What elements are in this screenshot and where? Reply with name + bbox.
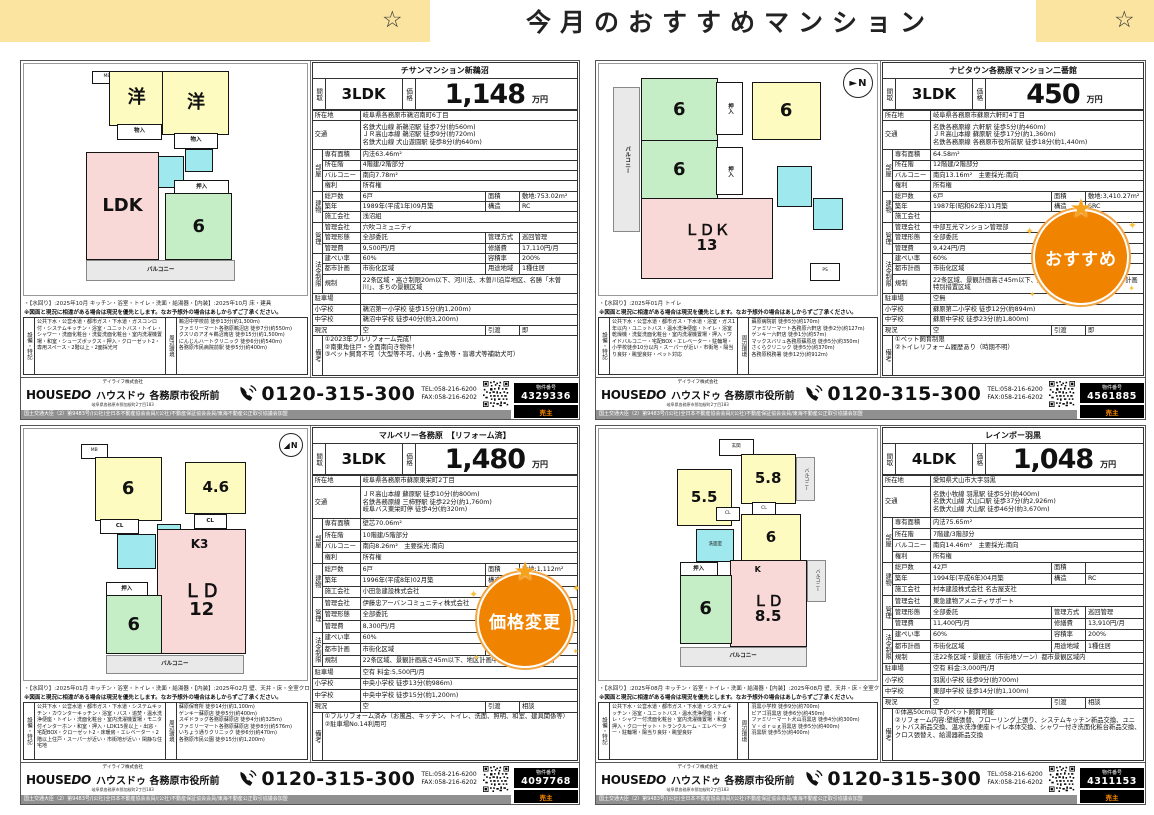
grp-heya: 部屋: [312, 150, 322, 192]
phone-number: 0120-315-300: [261, 383, 415, 405]
seller-badge: 売主: [514, 405, 578, 418]
disclaimer-line: ※図面と現況に相違がある場合は現況を優先とします。なお予想外の場合はあしからずご…: [21, 308, 310, 316]
balcony-label: バルコニー: [803, 468, 808, 491]
val-site-area: 敷地:753.02m²: [519, 191, 577, 201]
shuhen-text: 羽黒小学校 徒歩9分(約700m) ピアゴ羽黒店 徒歩6分(約450m) ファミ…: [749, 703, 876, 759]
balcony-label: バルコニー: [161, 662, 188, 668]
closet: 物入: [174, 133, 218, 149]
grp-horei: 法令制限: [882, 254, 892, 294]
val-junior-high: 中央中学校 徒歩15分(約1,200m): [360, 690, 577, 701]
val-builder: [930, 212, 1143, 222]
val-floor: 12階建/2階部分: [930, 160, 1143, 170]
val-structure: RC: [1086, 573, 1144, 584]
lbl-madori: 間取: [883, 444, 896, 474]
qr-code: [483, 381, 509, 407]
price-value: 1,480: [445, 444, 525, 475]
lbl-biko: 備考: [312, 713, 322, 761]
grp-heya: 部屋: [882, 518, 892, 563]
lbl-hikiwatashi: 引渡: [1052, 325, 1086, 335]
lbl-hikiwatashi: 引渡: [1052, 697, 1086, 708]
floor-plan: ◢N MB 6 4.6 CL CL ＬＤ 12 K3 押入 6 バルコニー: [23, 428, 308, 681]
lbl-kanri-keitai: 管理形態: [892, 607, 930, 618]
val-hikiwatashi: 相談: [520, 701, 578, 712]
spec-row: 間取 3LDK 価格 1,480万円: [312, 443, 578, 475]
lbl-bukken: 物件番号: [514, 769, 578, 776]
val-biko: ①体高50cm以下のペット飼育可能 ②リフォーム内容:壁紙張替、フローリング上張…: [892, 709, 1143, 761]
lbl-chikunen: 築年: [892, 202, 930, 212]
tel-number: TEL:058-216-6200: [987, 771, 1043, 779]
val-mgmt-fee: 9,424円/月: [930, 243, 1051, 253]
val-kisei: 22条区域・高さ制限20m以下、河川法、木曽川沿岸地区、名勝「木曽川」、まちの景…: [360, 274, 577, 294]
washroom: 洗面室: [696, 529, 734, 561]
lbl-kenri: 権利: [322, 181, 360, 191]
notes-box: 設備・特記 公共下水・公営水道・都市ガス・下水道・システムキッチン・浴室・ユニッ…: [598, 702, 878, 760]
bukken-number: 4329336: [514, 391, 578, 402]
val-address: 岐阜県各務原市鵜沼南町6丁目: [360, 111, 577, 121]
badge-text: おすすめ: [1045, 245, 1117, 270]
val-kenri: 所有権: [930, 551, 1143, 562]
room-label: ＬＤ 12: [184, 583, 220, 619]
lbl-shuhen: 周辺環境: [738, 703, 749, 759]
phone-block: 0120-315-300: [803, 383, 981, 405]
ps-label: PS: [822, 269, 828, 274]
closet-label: 押入: [693, 567, 704, 573]
lbl-kenpei: 建ぺい率: [322, 254, 360, 264]
val-elementary: 中央小学校 徒歩13分(約986m): [360, 678, 577, 689]
lbl-chikunen: 築年: [892, 573, 930, 584]
price-unit: 万円: [532, 94, 548, 105]
lbl-shogakko: 小学校: [312, 304, 360, 314]
lbl-kenpei: 建ぺい率: [892, 254, 930, 264]
grp-tatemono: 建物: [312, 191, 322, 222]
closet: 物入: [117, 124, 161, 140]
val-site-area: 敷地:3,410.27m²: [1086, 191, 1144, 201]
val-address: 岐阜県各務原市蘇原六軒町4丁目: [930, 111, 1143, 121]
closet-label: CL: [761, 507, 767, 512]
listing-card-4: 玄関 5.8 5.5 バルコニー CL CL 6 洗面室 ＬＤ 8.5 K バル…: [595, 425, 1146, 805]
lbl-toshi: 都市計画: [322, 264, 360, 274]
val-senyu: 内法63.46m²: [360, 150, 577, 160]
val-access: ＪＲ高山本線 蘇原駅 徒歩10分(約800m) 名鉄各務原線 三柿野駅 徒歩22…: [360, 487, 577, 518]
val-mgmt-form: 全部委託: [360, 609, 485, 620]
val-mgmt-form: 全部委託: [360, 233, 485, 243]
val-address: 岐阜県各務原市蘇原東栄町2丁目: [360, 476, 577, 487]
housedo-logo: HOUSEDO: [26, 388, 91, 402]
val-structure: SRC: [1086, 202, 1144, 212]
seller-badge: 売主: [1080, 405, 1144, 418]
room-label: ＬＤＫ 13: [684, 223, 729, 253]
property-title: チサンマンション新鵜沼: [312, 62, 578, 78]
lbl-chikunen: 築年: [322, 575, 360, 586]
lbl-setsubi: 設備・特記: [24, 703, 35, 759]
val-built: 1987年(昭和62年)11月築: [930, 202, 1051, 212]
lbl-biko: 備考: [882, 336, 892, 376]
lbl-kakaku: 価格: [403, 444, 416, 474]
lbl-kanri-kaisha: 管理会社: [892, 222, 930, 232]
toilet-area: [185, 149, 212, 172]
qr-code: [1049, 381, 1075, 407]
closet-label: 押入: [121, 587, 132, 593]
store-address: 岐阜県各務原市那加桜町2丁目183: [26, 403, 219, 407]
price-change-badge: ★ ✦✦✦✦ 価格変更: [479, 574, 571, 666]
property-title: マルベリー各務原 【リフォーム済】: [312, 427, 578, 443]
brand-block: デイライフ株式会社 HOUSEDO ハウスドゥ 各務原市役所前 岐阜県各務原市那…: [601, 766, 794, 792]
lbl-kozo: 構造: [1052, 573, 1086, 584]
shuhen-text: 蘇原病院前 徒歩5分(約170m) ファミリーマート各務原六軒店 徒歩2分(約1…: [749, 318, 876, 374]
val-hikiwatashi: 即: [1086, 325, 1144, 335]
val-elementary: 蘇原第二小学校 徒歩12分(約894m): [930, 304, 1143, 314]
compass-icon: ►N: [843, 68, 873, 98]
brand-block: デイライフ株式会社 HOUSEDO ハウスドゥ 各務原市役所前 岐阜県各務原市那…: [601, 381, 794, 407]
room-label: LDK: [102, 197, 142, 215]
price-value: 1,148: [445, 79, 525, 110]
lbl-kanri-hoshiki: 管理方式: [485, 233, 519, 243]
lbl-shozaikai: 所在階: [322, 530, 360, 541]
property-number-box: 物件番号4329336 売主: [514, 383, 578, 418]
lbl-chusha: 駐車場: [312, 294, 360, 304]
telfax-block: TEL:058-216-6200FAX:058-216-6202: [987, 771, 1043, 788]
lbl-shuzen-hi: 修繕費: [485, 243, 519, 253]
fax-number: FAX:058-216-6202: [987, 394, 1043, 402]
lbl-bukken: 物件番号: [1080, 769, 1144, 776]
badge-text: 価格変更: [489, 608, 561, 633]
lbl-kanri-keitai: 管理形態: [892, 233, 930, 243]
room-label: 洋: [187, 94, 205, 112]
lbl-shuhen: 周辺環境: [166, 703, 177, 759]
lbl-chugakko: 中学校: [312, 690, 360, 701]
val-mgmt-fee: 9,500円/月: [360, 243, 485, 253]
lbl-madori: 間取: [313, 79, 326, 109]
listing-card-2: ►N バルコニー 6 6 押入 6 押入 ＬＤＫ 13 PS ・【水回り】:20…: [595, 60, 1146, 420]
val-balcony: 南向13.16m² 主要採光:南向: [930, 170, 1143, 180]
license-bar: 国土交通大臣（2）第9483号/(公社)全日本不動産協会会員/(公社)不動産保証…: [21, 410, 511, 419]
lbl-menseki: 面積: [485, 191, 519, 201]
setsubi-text: 公共下水・公営水道・都市ガス・下水道・浴室・ガス1年以内・ユニットバス・温水洗浄…: [610, 318, 738, 374]
bukken-number: 4097768: [514, 776, 578, 787]
val-genkyo: 空: [930, 697, 1051, 708]
grp-tatemono: 建物: [882, 191, 892, 222]
room-tatami-2: 6: [641, 140, 718, 200]
renovation-caption: ・【水回り】:2025年01月 トイレ: [596, 298, 880, 308]
lbl-balcony: バルコニー: [322, 541, 360, 552]
val-parking: [360, 294, 577, 304]
listing-card-3: ◢N MB 6 4.6 CL CL ＬＤ 12 K3 押入 6 バルコニー ・【…: [20, 425, 580, 805]
flyer-left: ◢N MB 6 4.6 CL CL ＬＤ 12 K3 押入 6 バルコニー ・【…: [21, 426, 311, 762]
lbl-genkyo: 現況: [312, 701, 360, 712]
closet-label: 押入: [726, 166, 732, 177]
val-built: 1989年(平成1年)09月築: [360, 202, 485, 212]
val-mgmt-form: 全部委託: [930, 607, 1051, 618]
room-yellow-2: 4.6: [185, 462, 246, 514]
renovation-caption: ・【水回り】:2025年10月 キッチン・浴室・トイレ・洗面・給湯器・【内装】:…: [21, 298, 310, 308]
telfax-block: TEL:058-216-6200FAX:058-216-6202: [987, 386, 1043, 403]
room-label: 5.5: [691, 490, 718, 505]
pipe-space: PS: [810, 263, 840, 281]
grp-kanri: 管理: [312, 598, 322, 632]
grp-horei: 法令制限: [312, 632, 322, 667]
lbl-kotsu: 交通: [312, 487, 360, 518]
lbl-soukosu: 総戸数: [322, 191, 360, 201]
val-parking: 空有 料金:5,500円/月: [360, 667, 577, 678]
lbl-soukosu: 総戸数: [322, 564, 360, 575]
val-hikiwatashi: 相談: [1086, 697, 1144, 708]
val-repair-fee: 17,110円/月: [519, 243, 577, 253]
lbl-hikiwatashi: 引渡: [485, 325, 519, 335]
notes-box: 設備・特記 公共下水・公営水道・都市ガス・下水道・浴室・ガス1年以内・ユニットバ…: [598, 317, 878, 375]
renovation-caption: ・【水回り】:2025年08月 キッチン・浴室・トイレ・洗面・給湯器・【内装】:…: [596, 683, 880, 693]
phone-number: 0120-315-300: [261, 768, 415, 790]
room-tatami: 6: [106, 595, 162, 655]
store-name: ハウスドゥ 各務原市役所前: [96, 776, 219, 787]
room-label: 6: [699, 600, 712, 618]
balcony-area: バルコニー: [106, 655, 244, 675]
room-western-2: 洋: [162, 71, 229, 135]
grp-heya: 部屋: [882, 150, 892, 192]
store-address: 岐阜県各務原市那加桜町2丁目183: [26, 788, 219, 792]
shuhen-text: 蘇原保育所 徒歩14分(約1,100m) ゲンキー蘇原店 徒歩5分(約400m)…: [177, 703, 307, 759]
lbl-kanri-hi: 管理費: [322, 243, 360, 253]
phone-icon: [803, 384, 823, 404]
store-name: ハウスドゥ 各務原市役所前: [96, 391, 219, 402]
closet-label: CL: [725, 512, 731, 517]
lbl-kakaku: 価格: [973, 444, 986, 474]
lbl-genkyo: 現況: [882, 697, 930, 708]
lbl-setsubi: 設備・特記: [24, 318, 35, 374]
val-repair-fee: 13,910円/月: [1086, 618, 1144, 629]
grp-horei: 法令制限: [882, 629, 892, 663]
val-genkyo: 空: [360, 701, 485, 712]
lbl-kisei: 規制: [892, 274, 930, 294]
property-number-box: 物件番号4561885 売主: [1080, 383, 1144, 418]
notes-box: 設備・特記 公共下水・公営水道・都市ガス・下水道・システムキッチン・カウンターキ…: [23, 702, 308, 760]
val-city-plan: 市街化区域: [930, 264, 1051, 274]
phone-icon: [237, 769, 257, 789]
val-units: 42戸: [930, 562, 1051, 573]
lbl-shogakko: 小学校: [312, 678, 360, 689]
brand-block: デイライフ株式会社 HOUSEDO ハウスドゥ 各務原市役所前 岐阜県各務原市那…: [26, 766, 219, 792]
lbl-chugakko: 中学校: [882, 686, 930, 697]
val-yoto: 1種住居: [519, 264, 577, 274]
val-senyu: 内法75.65m²: [930, 518, 1143, 529]
bukken-number: 4311153: [1080, 776, 1144, 787]
header-yellow-right: [1036, 0, 1154, 42]
kitchen-label: K: [755, 565, 761, 574]
closet-label: CL: [116, 524, 124, 530]
val-kenpei: 60%: [930, 254, 1051, 264]
lbl-senyu: 専有面積: [892, 150, 930, 160]
balcony-area: バルコニー: [680, 647, 807, 667]
val-city-plan: 市街化区域: [360, 644, 485, 656]
seller-badge: 売主: [514, 790, 578, 803]
val-kenpei: 60%: [360, 254, 485, 264]
val-junior-high: 蘇原中学校 徒歩23分(約1,800m): [930, 315, 1143, 325]
lbl-bukken: 物件番号: [1080, 384, 1144, 391]
val-kenpei: 60%: [930, 629, 1051, 640]
lbl-kanri-kaisha: 管理会社: [322, 598, 360, 609]
val-built: 1996年(平成8年)02月築: [360, 575, 485, 586]
closet: 押入: [716, 147, 743, 195]
balcony-area: バルコニー: [613, 87, 640, 232]
val-mgmt-way: 巡回管理: [1086, 607, 1144, 618]
listing-card-1: MB 洋 洋 物入 物入 LDK 押入 6 バルコニー ・【水回り】:2025年…: [20, 60, 580, 420]
setsubi-text: 公共下水・公営水道・都市ガス・下水道・ガスコンロ付・システムキッチン・浴室・ユニ…: [35, 318, 166, 374]
lbl-sekou: 施工会社: [892, 585, 930, 596]
room-label: 6: [193, 218, 206, 236]
renovation-caption: ・【水回り】:2025年01月 キッチン・浴室・トイレ・洗面・給湯器・【内装】:…: [21, 683, 310, 693]
val-yoseki: 200%: [519, 254, 577, 264]
lbl-shozaichi: 所在地: [312, 476, 360, 487]
lbl-shozaikai: 所在階: [892, 160, 930, 170]
license-bar: 国土交通大臣（2）第9483号/(公社)全日本不動産協会会員/(公社)不動産保証…: [596, 795, 1077, 804]
lbl-soukosu: 総戸数: [892, 562, 930, 573]
phone-number: 0120-315-300: [827, 768, 981, 790]
lbl-yoseki: 容積率: [485, 254, 519, 264]
header-yellow-left: [0, 0, 430, 42]
room-ldk: LDK: [86, 152, 159, 260]
fax-number: FAX:058-216-6202: [421, 779, 477, 787]
license-bar: 国土交通大臣（2）第9483号/(公社)全日本不動産協会会員/(公社)不動産保証…: [596, 410, 1077, 419]
compass-n: N: [291, 441, 298, 450]
floor-plan: ►N バルコニー 6 6 押入 6 押入 ＬＤＫ 13 PS: [598, 63, 878, 296]
lbl-kotsu: 交通: [312, 121, 360, 150]
lbl-biko: 備考: [312, 336, 322, 376]
flyer-footer: デイライフ株式会社 HOUSEDO ハウスドゥ 各務原市役所前 岐阜県各務原市那…: [21, 762, 579, 795]
page-header: ☆ 今月のおすすめマンション ☆: [0, 0, 1154, 42]
lbl-kanri-kaisha: 管理会社: [322, 222, 360, 232]
lbl-kanri-hi: 管理費: [892, 618, 930, 629]
lbl-biko: 備考: [882, 709, 892, 761]
spec-row: 間取 3LDK 価格 1,148万円: [312, 78, 578, 110]
val-city-plan: 市街化区域: [930, 641, 1051, 652]
val-balcony: 南向7.78m²: [360, 170, 577, 180]
grp-kanri: 管理: [882, 222, 892, 253]
lbl-shozaikai: 所在階: [322, 160, 360, 170]
layout-value: 3LDK: [326, 444, 403, 474]
lbl-senyu: 専有面積: [322, 150, 360, 160]
property-number-box: 物件番号4311153 売主: [1080, 768, 1144, 803]
val-biko: ①2023年フルリフォーム完成！ ②南東角住戸・全面南向き物件！ ③ペット飼育不…: [322, 336, 577, 376]
sparkle-icon: ✦: [469, 588, 478, 601]
val-junior-high: 鵜沼中学校 徒歩40分(約3,200m): [360, 315, 577, 325]
room-label: 6: [766, 530, 776, 545]
fax-number: FAX:058-216-6202: [987, 779, 1043, 787]
val-senyu: 壁芯70.06m²: [360, 518, 577, 529]
lbl-madori: 間取: [883, 79, 896, 109]
val-biko: ①ペット飼育制限 ②トイレリフォーム履歴あり（時期不明）: [892, 336, 1143, 376]
tel-number: TEL:058-216-6200: [421, 386, 477, 394]
qr-code: [483, 766, 509, 792]
lbl-toshi: 都市計画: [892, 264, 930, 274]
spec-row: 間取 4LDK 価格 1,048万円: [882, 443, 1144, 475]
balcony-label: バルコニー: [815, 569, 820, 592]
lbl-yoto: 用途地域: [1052, 641, 1086, 652]
lbl-kanri-keitai: 管理形態: [322, 609, 360, 620]
room-label: 4.6: [202, 480, 229, 495]
lbl-kenpei: 建ぺい率: [322, 632, 360, 644]
room-yellow-1: 5.8: [741, 454, 796, 504]
lbl-balcony: バルコニー: [892, 170, 930, 180]
flyer-left: 玄関 5.8 5.5 バルコニー CL CL 6 洗面室 ＬＤ 8.5 K バル…: [596, 426, 881, 762]
val-structure: RC: [519, 202, 577, 212]
balcony-side-1: バルコニー: [796, 457, 815, 502]
lbl-hikiwatashi: 引渡: [486, 701, 520, 712]
closet: CL: [716, 507, 740, 522]
val-hikiwatashi: 即: [519, 325, 577, 335]
compass-arrow: ◢: [284, 441, 290, 450]
lbl-sekou: 施工会社: [322, 212, 360, 222]
lbl-chugakko: 中学校: [882, 315, 930, 325]
compass-icon: ◢N: [279, 433, 303, 457]
price-value: 450: [1026, 79, 1079, 110]
closet-label: CL: [206, 519, 214, 525]
grp-kanri: 管理: [312, 222, 322, 253]
store-name: ハウスドゥ 各務原市役所前: [671, 391, 794, 402]
sparkle-icon: ✦: [1025, 225, 1034, 238]
toilet-area: [813, 198, 843, 230]
license-bar: 国土交通大臣（2）第9483号/(公社)全日本不動産協会会員/(公社)不動産保証…: [21, 795, 511, 804]
val-mgmt-fee: 11,400円/月: [930, 618, 1051, 629]
price-unit: 万円: [532, 459, 548, 470]
lbl-kenpei: 建ぺい率: [892, 629, 930, 640]
lbl-shogakko: 小学校: [882, 675, 930, 686]
val-parking: 空有 料金:3,000円/月: [930, 664, 1143, 675]
lbl-senyu: 専有面積: [322, 518, 360, 529]
phone-block: 0120-315-300: [237, 768, 415, 790]
lbl-setsubi: 設備・特記: [599, 703, 610, 759]
disclaimer-line: ※図面と現況に相違がある場合は現況を優先とします。なお予想外の場合はあしからずご…: [21, 693, 310, 701]
sparkle-icon: ✦: [1128, 284, 1135, 293]
fax-number: FAX:058-216-6202: [421, 394, 477, 402]
details-table: 所在地岐阜県各務原市鵜沼南町6丁目 交通名鉄犬山線 新鵜沼駅 徒歩7分(約560…: [312, 110, 578, 376]
housedo-logo: HOUSEDO: [601, 388, 666, 402]
store-name: ハウスドゥ 各務原市役所前: [671, 776, 794, 787]
val-built: 1994年(平成6年)04月築: [930, 573, 1051, 584]
val-junior-high: 東部中学校 徒歩14分(約1,100m): [930, 686, 1143, 697]
val-address: 愛知県犬山市大字羽黒: [930, 476, 1143, 487]
room-label: 6: [780, 102, 793, 120]
sparkle-icon: ✦: [1029, 290, 1036, 299]
room-western-1: 洋: [109, 71, 165, 126]
val-yoto: 1種住居: [1086, 641, 1144, 652]
store-address: 岐阜県各務原市那加桜町2丁目183: [601, 403, 794, 407]
osusume-badge: ★ ✦✦✦✦ おすすめ: [1035, 211, 1127, 303]
lbl-bukken: 物件番号: [514, 384, 578, 391]
val-city-plan: 市街化区域: [360, 264, 485, 274]
telfax-block: TEL:058-216-6200FAX:058-216-6202: [421, 771, 477, 788]
mb-label: MB: [91, 449, 98, 454]
flyer-left: ►N バルコニー 6 6 押入 6 押入 ＬＤＫ 13 PS ・【水回り】:20…: [596, 61, 881, 377]
val-site-area: [1086, 562, 1144, 573]
store-address: 岐阜県各務原市那加桜町2丁目183: [601, 788, 794, 792]
bukken-number: 4561885: [1080, 391, 1144, 402]
val-builder: 村本建設株式会社 名古屋支社: [930, 585, 1143, 596]
room-label: 洋: [128, 89, 146, 107]
lbl-kanri-kaisha: 管理会社: [892, 596, 930, 607]
disclaimer-line: ※図面と現況に相違がある場合は現況を優先とします。なお予想外の場合はあしからずご…: [596, 308, 880, 316]
val-builder: 浅沼組: [360, 212, 577, 222]
seller-badge: 売主: [1080, 790, 1144, 803]
lbl-genkyo: 現況: [312, 325, 360, 335]
tel-number: TEL:058-216-6200: [987, 386, 1043, 394]
lbl-kenri: 権利: [892, 181, 930, 191]
balcony-label: バルコニー: [147, 268, 174, 274]
balcony-area: バルコニー: [86, 260, 235, 280]
page-title: 今月のおすすめマンション: [420, 0, 1040, 42]
flyer-footer: デイライフ株式会社 HOUSEDO ハウスドゥ 各務原市役所前 岐阜県各務原市那…: [596, 762, 1145, 795]
star-icon: ☆: [382, 7, 403, 33]
sparkle-icon: ✦: [473, 653, 480, 662]
flyer-left: MB 洋 洋 物入 物入 LDK 押入 6 バルコニー ・【水回り】:2025年…: [21, 61, 311, 377]
